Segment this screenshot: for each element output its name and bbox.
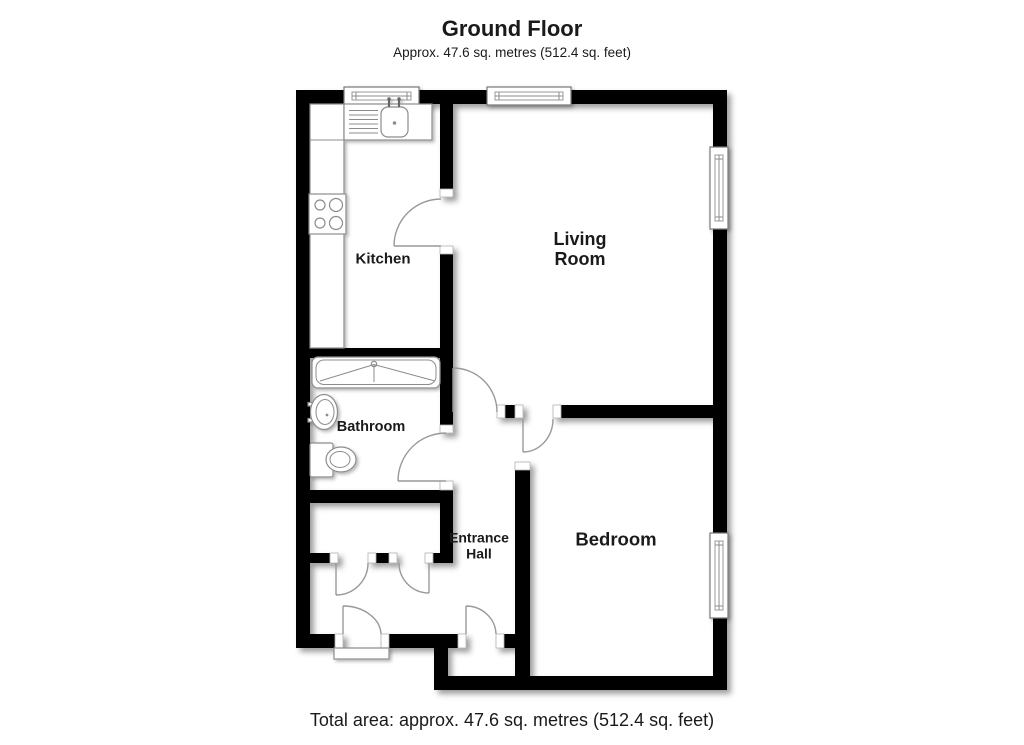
room-label-entrance-hall: Entrance Hall — [449, 530, 509, 561]
bedroom-window-icon — [710, 533, 728, 618]
wash-basin-icon — [308, 395, 338, 430]
entrance-door-jamb-east — [381, 634, 389, 648]
bedroom-west-wall — [515, 470, 530, 690]
bedroom-door-jamb-east — [553, 405, 561, 418]
kitchen-window-icon — [344, 87, 419, 105]
cupboard-south-wall-seg1 — [296, 553, 330, 563]
bedroom-west-wall-cap — [515, 462, 530, 470]
cupboard-door-b-icon — [399, 563, 429, 593]
kitchen-sink-icon — [344, 97, 432, 140]
bathroom-door-jamb-top — [440, 425, 453, 433]
hall-south-wall-seg2 — [389, 634, 458, 648]
room-label-bedroom: Bedroom — [575, 530, 656, 551]
floor-plan-drawing — [0, 0, 1024, 745]
hob-icon — [309, 194, 346, 234]
entrance-step-icon — [334, 648, 389, 659]
room-label-kitchen: Kitchen — [355, 252, 410, 269]
room-label-living-room: Living Room — [554, 229, 607, 269]
kitchen-door-jamb-top — [440, 189, 453, 197]
total-area-text: Total area: approx. 47.6 sq. metres (512… — [0, 710, 1024, 731]
cupboard-a-jamb-east — [368, 553, 376, 563]
bathroom-door-icon — [398, 433, 446, 481]
porch-door-jamb-west — [458, 634, 466, 648]
kitchen-east-wall-lower — [440, 254, 453, 425]
kitchen-door-icon — [394, 199, 441, 246]
outer-wall-left — [296, 90, 310, 648]
kitchen-east-wall-upper — [440, 104, 453, 189]
cupboard-south-wall-seg2 — [376, 553, 389, 563]
porch-door-jamb-east — [496, 634, 504, 648]
entrance-door-jamb-west — [335, 634, 343, 648]
cupboard-door-a-icon — [336, 563, 368, 595]
fixtures — [308, 97, 440, 659]
living-room-door-icon — [453, 368, 497, 412]
cupboard-b-jamb-west — [389, 553, 397, 563]
living-room-top-window-icon — [487, 87, 571, 105]
walls — [296, 90, 727, 690]
toilet-icon — [310, 443, 356, 477]
cupboard-b-jamb-east — [425, 553, 433, 563]
bathtub-icon — [312, 357, 440, 388]
living-south-wall-seg1 — [505, 405, 515, 418]
living-room-side-window-icon — [710, 147, 728, 229]
kitchen-door-jamb-bottom — [440, 246, 453, 254]
outer-wall-bottom — [434, 676, 727, 690]
bathroom-door-jamb-bottom — [440, 481, 453, 490]
floor-plan-page: Ground Floor Approx. 47.6 sq. metres (51… — [0, 0, 1024, 745]
room-label-bathroom: Bathroom — [337, 419, 405, 435]
porch-door-icon — [466, 606, 496, 634]
bedroom-door-icon — [523, 419, 553, 452]
entrance-door-icon — [343, 606, 381, 634]
hall-south-wall-seg1 — [296, 634, 335, 648]
bathroom-south-wall — [296, 490, 453, 503]
bedroom-door-jamb-west — [515, 405, 523, 418]
living-south-wall-seg2 — [561, 405, 713, 418]
cupboard-a-jamb-west — [330, 553, 338, 563]
living-south-wall-end-cap — [497, 405, 505, 418]
